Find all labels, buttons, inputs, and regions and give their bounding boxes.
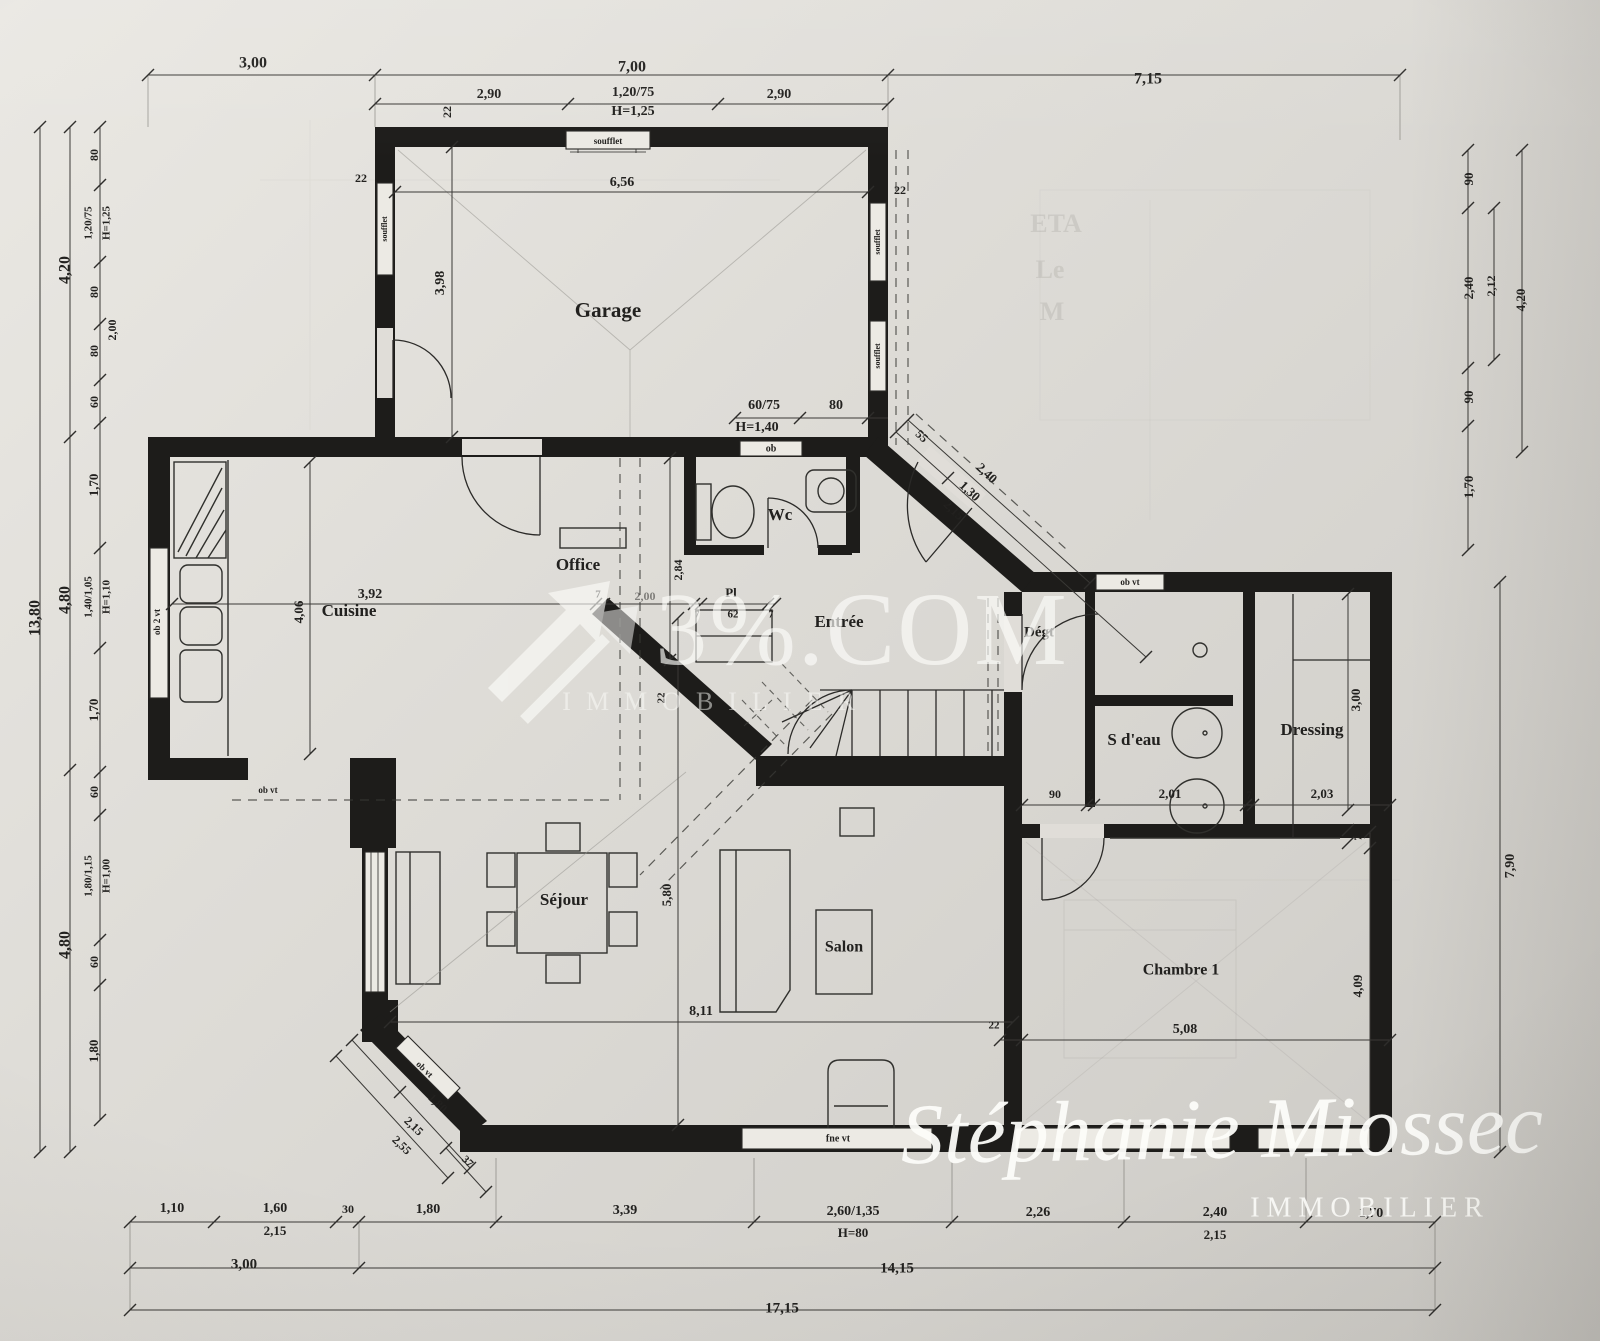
window-label: ob vt: [1120, 577, 1139, 587]
dimension-label: 3,98: [433, 271, 448, 296]
window-label: soufflet: [594, 136, 623, 146]
dimension-label: 90: [1049, 787, 1061, 801]
dimension-label: 1,80/1,15: [83, 855, 95, 897]
dimension-label: 7: [1247, 790, 1252, 801]
dimension-label: 2,03: [1311, 786, 1334, 801]
garage-side-door: [393, 340, 451, 398]
dimension-label: 2,90: [767, 87, 792, 102]
bleed-through-text: M: [1040, 297, 1065, 326]
dimension-label: 4,06: [291, 600, 306, 623]
dimension-label: 1,80: [86, 1040, 101, 1063]
garage-house-door: [462, 457, 540, 535]
dimension-label: 80: [87, 345, 101, 357]
bleed-through-text: Le: [1036, 255, 1065, 284]
kitchen-sink-1: [180, 565, 222, 603]
dimension-label: 14,15: [880, 1260, 914, 1276]
office-cabinet: [560, 528, 626, 548]
dimension-label: H=80: [838, 1225, 869, 1240]
dimension-label: 60: [87, 786, 101, 798]
room-label: Séjour: [540, 890, 589, 909]
window-label: fne vt: [826, 1133, 851, 1144]
dimension-label: 17,15: [765, 1300, 799, 1316]
dimension-label: 90: [1461, 173, 1476, 186]
chair: [487, 912, 515, 946]
dimension-label: 7: [1088, 790, 1093, 801]
dimension-label: 3,00: [1348, 689, 1363, 712]
window-label: ob 2 vt: [152, 609, 162, 635]
dimension-label: 7,90: [1503, 854, 1518, 879]
armchair: [828, 1060, 894, 1128]
bay-west-window: [365, 852, 385, 992]
window-label: ob vt: [258, 785, 277, 795]
floor-plan-photo: GarageOfficeCuisineWcEntréeDégtPlS d'eau…: [0, 0, 1600, 1341]
garage-house-door-gap: [462, 439, 542, 455]
room-label: Chambre 1: [1143, 962, 1220, 979]
dimension-label: 1,70: [1461, 476, 1476, 499]
window-label: soufflet: [873, 343, 882, 369]
dimension-label: 4,80: [57, 931, 74, 959]
dimension-label: 4,80: [57, 586, 74, 614]
dimension-label: 80: [87, 286, 101, 298]
dimension-label: 30: [342, 1202, 354, 1216]
bleed-through-text: ETA: [1030, 209, 1082, 238]
bedroom-door-gap: [1040, 824, 1104, 838]
bedroom-door: [1042, 838, 1104, 900]
post: [840, 808, 874, 836]
dimension-label: 2,12: [1484, 276, 1498, 297]
dimension-label: 80: [87, 149, 101, 161]
dimension-label: 22: [440, 106, 454, 118]
chair: [609, 853, 637, 887]
kitchen-sink-2: [180, 607, 222, 645]
dimension-label: 3,00: [239, 55, 267, 72]
basin-1: [1172, 708, 1222, 758]
bedroom-ghost-furniture: [1064, 900, 1236, 1058]
room-label: Salon: [825, 939, 863, 956]
dimension-label: H=1,40: [735, 420, 778, 435]
dimension-label: 80: [829, 398, 843, 413]
dimension-label: 8,11: [689, 1004, 713, 1019]
dimension-label: 5,80: [659, 884, 674, 907]
dimension-label: 4,09: [1350, 974, 1365, 997]
dimension-label: 22: [355, 171, 367, 185]
dimension-label: 1,20/75: [612, 85, 654, 100]
room-label: Garage: [575, 298, 641, 322]
room-label: Dressing: [1281, 720, 1344, 739]
agency-watermark-text: Stéphanie Miossec: [900, 1075, 1544, 1182]
dimension-label: 2,15: [401, 1114, 426, 1139]
kitchen-unit: [180, 650, 222, 702]
dimension-label: 1,70: [86, 699, 101, 722]
dimension-label: 7: [1353, 836, 1364, 841]
sideboard: [396, 852, 440, 984]
dimension-label: H=1,25: [101, 205, 113, 240]
dimension-label: 3,92: [358, 587, 383, 602]
dimension-label: 22: [989, 1020, 1001, 1032]
chair: [546, 955, 580, 983]
drain: [1193, 643, 1207, 657]
room-label: Office: [556, 555, 601, 574]
window-label: soufflet: [873, 229, 882, 255]
dimension-label: 55: [913, 427, 931, 445]
brand-watermark-text: 3%.COM: [655, 572, 1069, 687]
agency-watermark: Stéphanie Miossec IMMOBILIER: [900, 1075, 1544, 1223]
dimension-label: 2,55: [389, 1133, 414, 1158]
dimension-label: 1,20/75: [83, 206, 95, 240]
chair: [609, 912, 637, 946]
dimension-label: 7,15: [1134, 71, 1162, 88]
dimension-label: 4,20: [1513, 289, 1528, 312]
dimension-label: 37: [459, 1154, 476, 1171]
dimension-label: 22: [894, 183, 906, 197]
dimension-label: 2,60/1,35: [827, 1204, 880, 1219]
dimension-label: 60/75: [748, 398, 780, 413]
dimension-label: 3,39: [613, 1203, 638, 1218]
dimension-label: 5,08: [1173, 1022, 1198, 1037]
dimension-label: H=1,25: [611, 104, 654, 119]
dimension-label: 2,40: [1461, 277, 1476, 300]
dimension-label: 2,15: [264, 1223, 287, 1238]
dimension-label: 6,56: [610, 175, 635, 190]
dimension-label: 4,20: [57, 256, 74, 284]
room-label: S d'eau: [1107, 730, 1160, 749]
garage-side-door-gap: [377, 328, 393, 398]
toilet-tank: [696, 484, 711, 540]
sofa: [720, 850, 790, 1012]
dimension-label: 1,40/1,05: [83, 576, 95, 618]
dimension-label: 2,26: [1026, 1205, 1051, 1220]
dimension-label: H=1,00: [101, 858, 113, 893]
dimension-label: 2,15: [1204, 1227, 1227, 1242]
dimension-label: 7,00: [618, 59, 646, 76]
room-label: Wc: [768, 505, 793, 524]
toilet-bowl: [712, 486, 754, 538]
dimension-label: 1,70: [86, 474, 101, 497]
window-label: ob: [766, 443, 777, 454]
window-label: soufflet: [380, 216, 389, 242]
dimension-label: 13,80: [27, 600, 44, 636]
chair: [487, 853, 515, 887]
chair: [546, 823, 580, 851]
floor-plan-drawing: GarageOfficeCuisineWcEntréeDégtPlS d'eau…: [0, 0, 1600, 1341]
dimension-label: 2,40: [1203, 1205, 1228, 1220]
ghost-text: ETALeM: [1030, 209, 1082, 326]
dimension-label: 1,60: [263, 1201, 288, 1216]
dimension-label: 1,10: [160, 1201, 185, 1216]
dimension-label: 2,01: [1159, 786, 1182, 801]
agency-watermark-tagline: IMMOBILIER: [1250, 1192, 1490, 1223]
dimension-label: 60: [87, 396, 101, 408]
dimension-label: 90: [1461, 391, 1476, 404]
brand-watermark-tagline: IMMOBILIER: [562, 687, 869, 716]
dimension-label: 1,80: [416, 1202, 441, 1217]
dimension-label: 2,90: [477, 87, 502, 102]
dimension-label: 3,00: [231, 1256, 257, 1272]
brand-watermark: 3%.COM IMMOBILIER: [488, 572, 1069, 720]
dimension-label: 2,00: [105, 320, 119, 341]
dimension-label: H=1,10: [101, 579, 113, 614]
dressing-closet: [1293, 594, 1370, 838]
dimension-label: 2,00: [635, 589, 656, 603]
dimension-label: 60: [87, 956, 101, 968]
room-label: Cuisine: [322, 601, 377, 620]
